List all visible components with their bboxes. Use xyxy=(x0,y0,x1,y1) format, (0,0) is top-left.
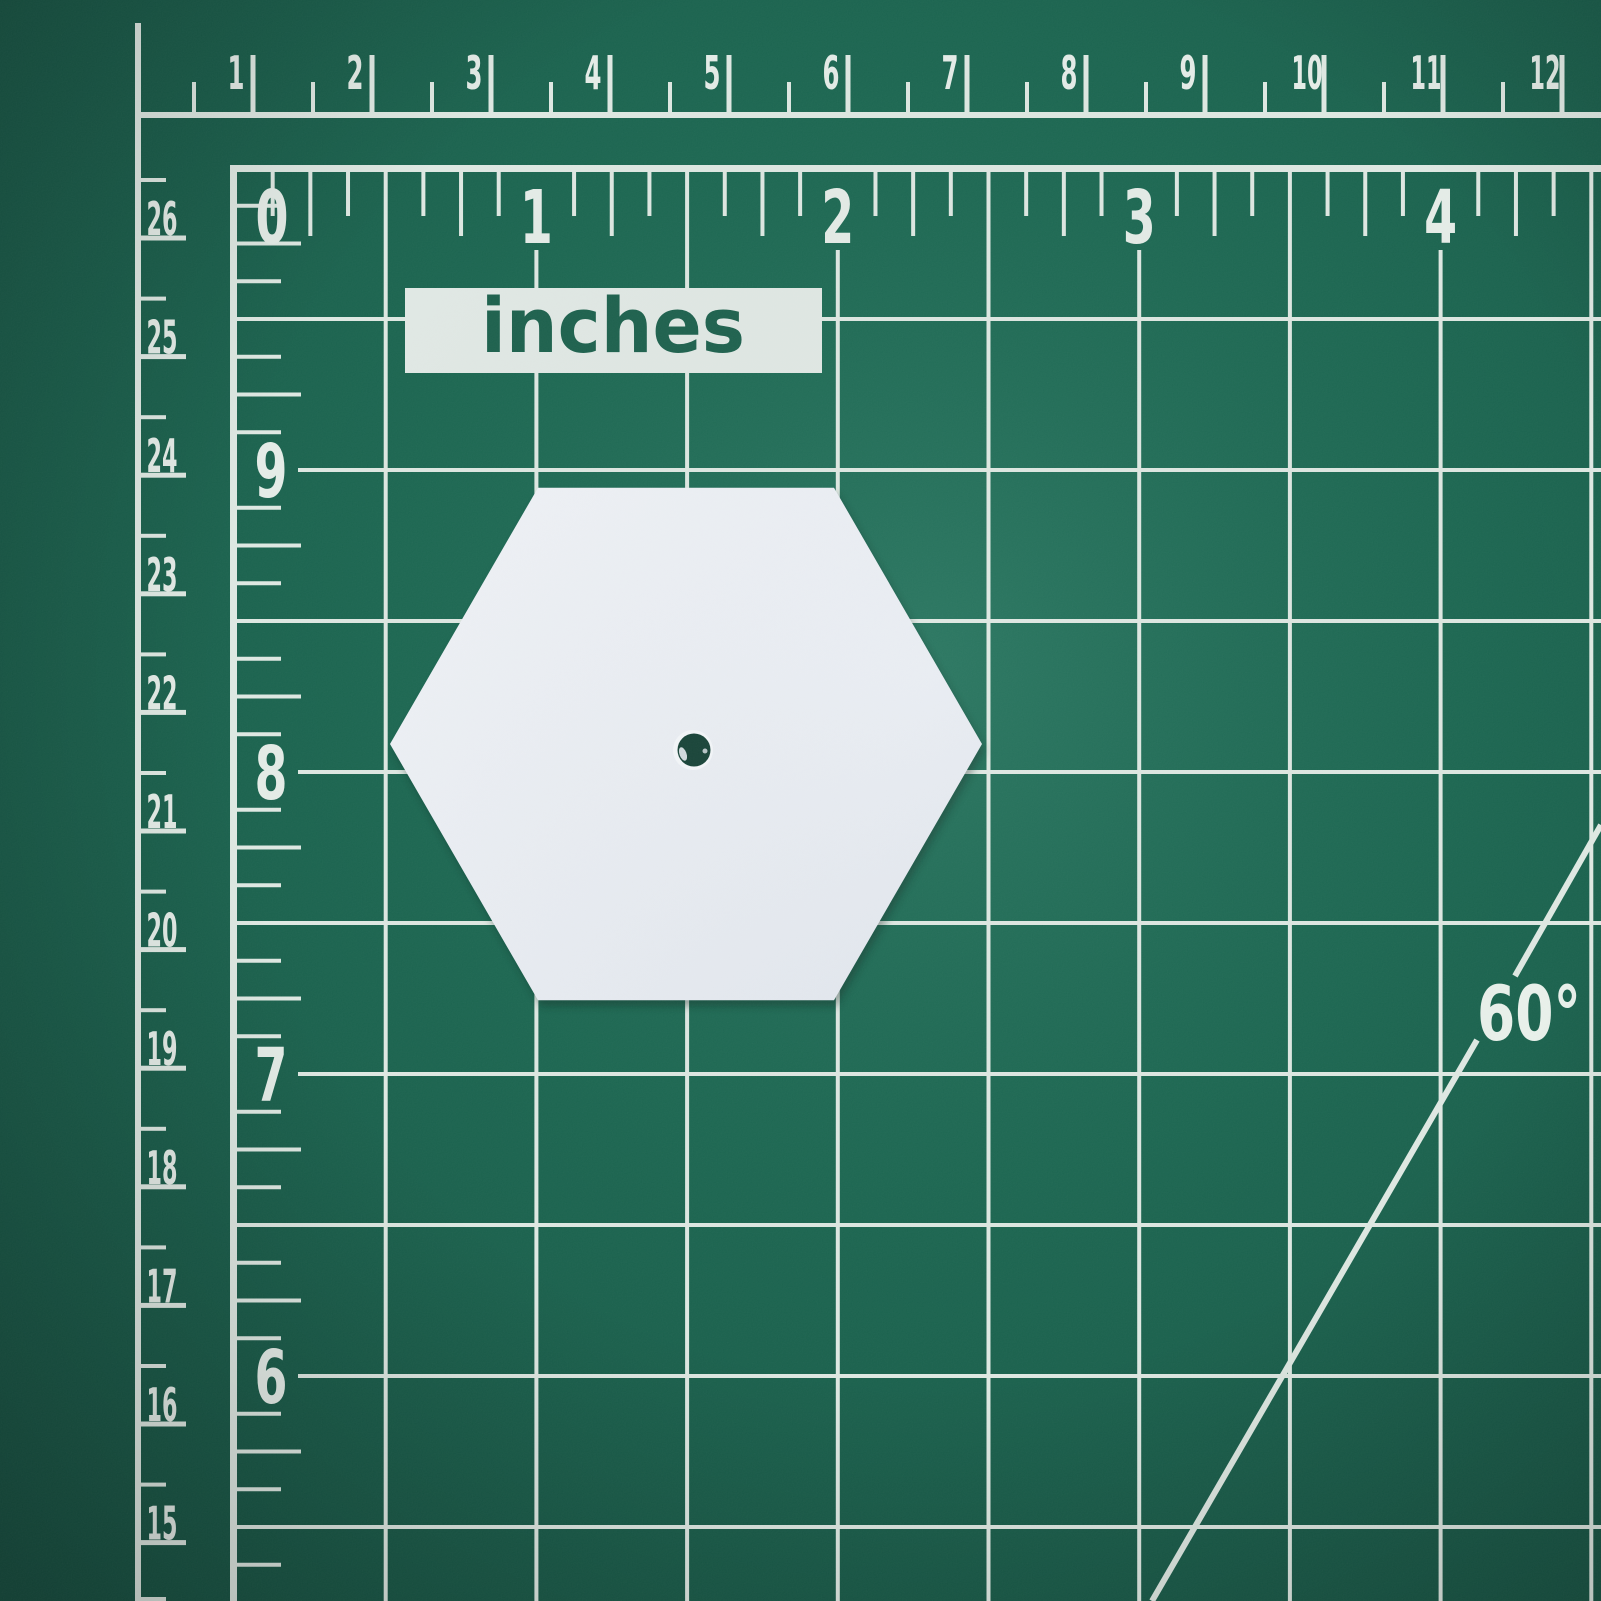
cutting-mat-photo: inches 012349876 123456789101112 2625242… xyxy=(0,0,1601,1601)
grain-texture xyxy=(0,0,1601,1601)
cutting-mat: inches 012349876 123456789101112 2625242… xyxy=(0,0,1601,1601)
